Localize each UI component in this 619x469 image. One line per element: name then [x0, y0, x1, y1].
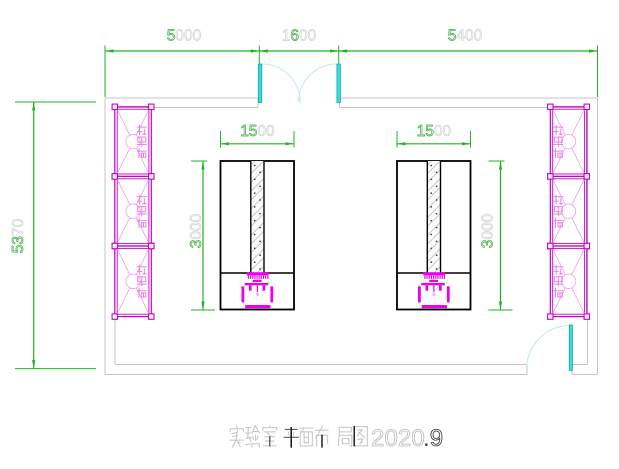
svg-text:000: 000: [188, 213, 205, 239]
svg-text:3: 3: [480, 240, 497, 249]
svg-text:70: 70: [10, 218, 27, 236]
svg-text:1: 1: [282, 28, 291, 45]
svg-text:3: 3: [188, 240, 205, 249]
svg-text:15: 15: [240, 123, 257, 140]
svg-text:5: 5: [448, 28, 457, 45]
svg-text:400: 400: [456, 28, 482, 45]
svg-text:15: 15: [417, 123, 434, 140]
svg-text:5: 5: [167, 28, 176, 45]
svg-text:.: .: [423, 425, 430, 452]
svg-text:00: 00: [257, 123, 275, 140]
svg-text:000: 000: [175, 28, 201, 45]
svg-text:000: 000: [480, 213, 497, 239]
svg-text:00: 00: [299, 28, 317, 45]
svg-text:00: 00: [434, 123, 452, 140]
svg-text:53: 53: [10, 236, 27, 253]
svg-text:6: 6: [290, 28, 299, 45]
svg-text:9: 9: [430, 425, 443, 452]
svg-text:2020: 2020: [371, 425, 425, 452]
